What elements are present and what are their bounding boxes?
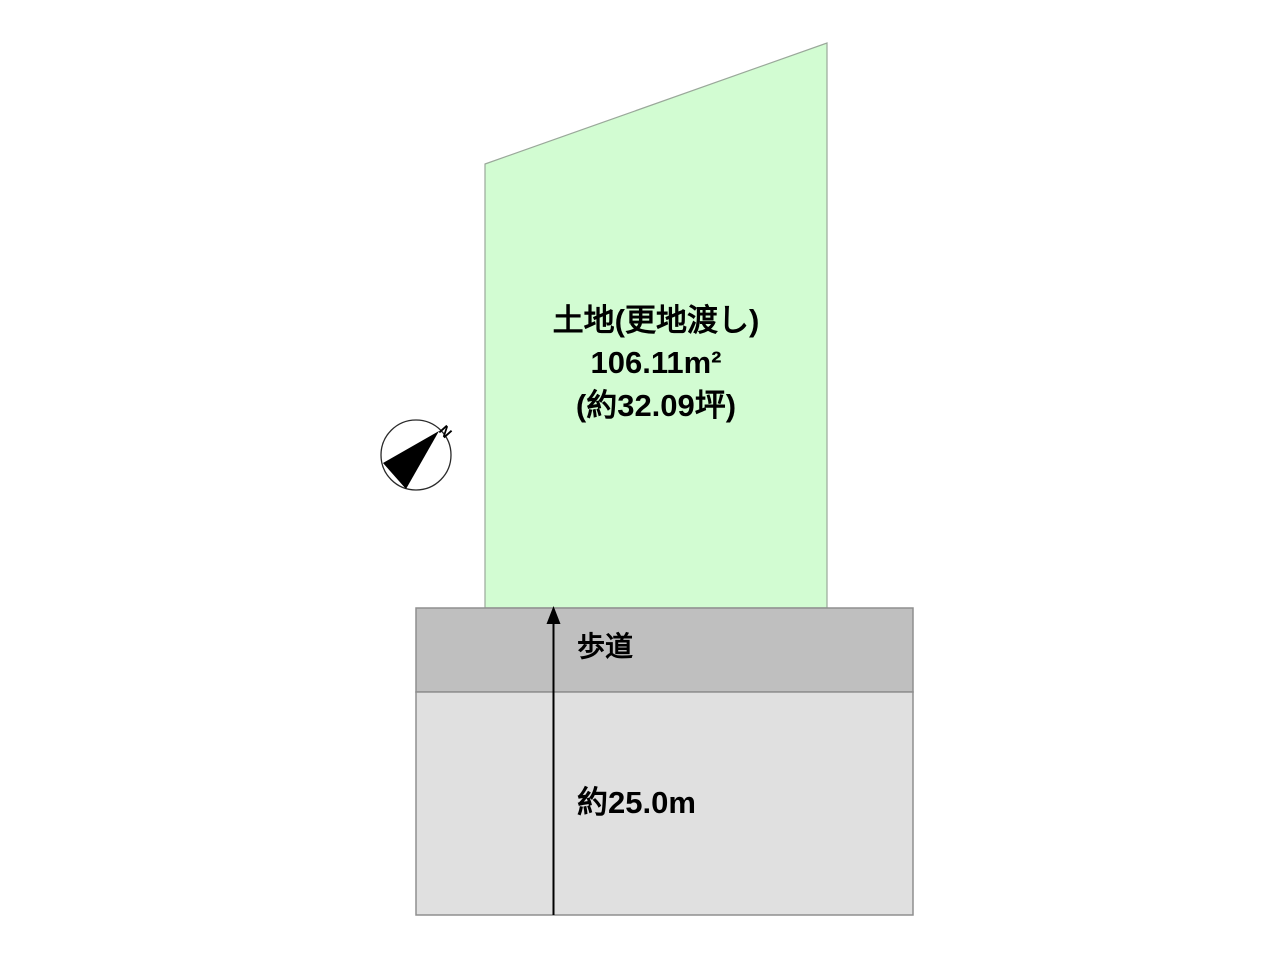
sidewalk-label: 歩道: [577, 630, 633, 662]
plot-label-line1: 土地(更地渡し): [553, 303, 760, 338]
land-layout-diagram: 土地(更地渡し) 106.11m² (約32.09坪) 歩道 約25.0m N: [0, 0, 1280, 960]
plot-area-tsubo: (約32.09坪): [576, 388, 736, 423]
compass-icon: N: [381, 420, 455, 490]
diagram-svg: 土地(更地渡し) 106.11m² (約32.09坪) 歩道 約25.0m N: [0, 0, 1280, 960]
road-width-label: 約25.0m: [577, 785, 696, 820]
plot-area-sqm: 106.11m²: [591, 345, 722, 380]
sidewalk-area: [416, 608, 913, 692]
